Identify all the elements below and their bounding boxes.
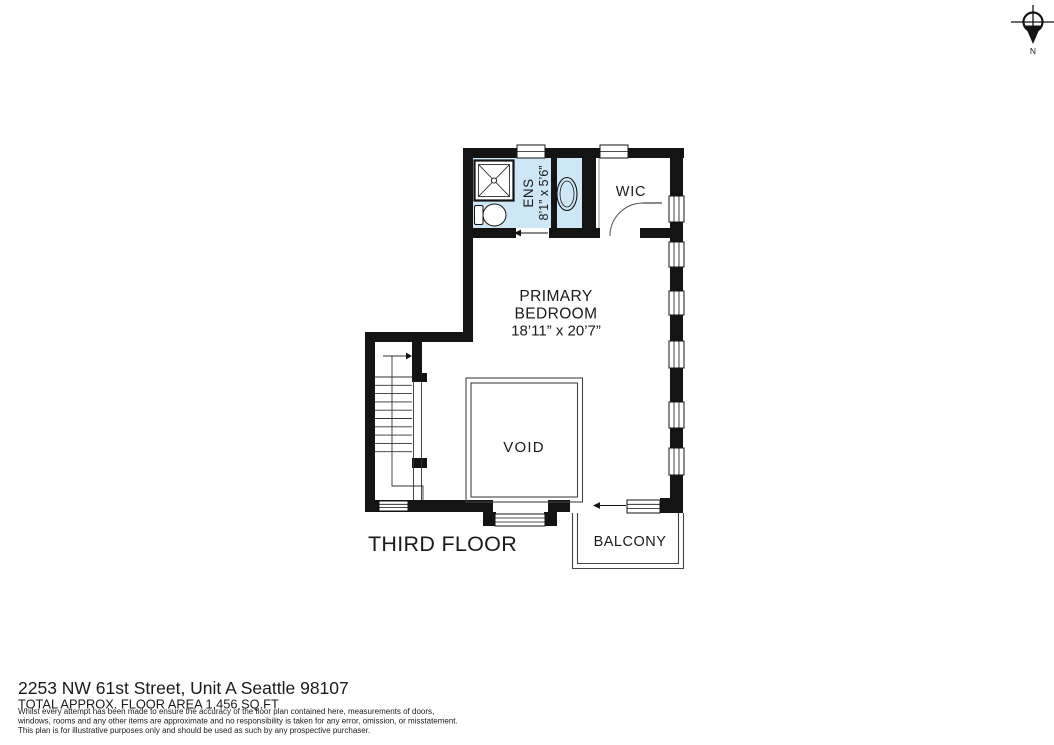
window-top-wic <box>600 145 628 158</box>
wall-ens-divider <box>551 158 557 228</box>
wic-door-swing-arc <box>610 203 643 236</box>
wall-left-upper <box>463 158 473 342</box>
window-right-5 <box>669 402 684 428</box>
footer-disclaimer-line: windows, rooms and any other items are a… <box>17 717 458 726</box>
ens-label: ENS <box>521 178 536 207</box>
wall-stair-block <box>412 458 427 468</box>
wall-wic-bottom <box>640 228 670 238</box>
stair-railing <box>414 380 422 500</box>
ens-door-arrow <box>514 230 548 237</box>
wall-stair-wing-left <box>365 342 375 512</box>
wall-ens-wic-divider <box>582 158 596 238</box>
window-right-3 <box>669 291 684 315</box>
toilet-bowl <box>483 204 506 226</box>
wall-ens-bottom <box>463 228 516 238</box>
bay-window <box>495 514 545 526</box>
void-label: VOID <box>503 439 544 456</box>
wall-stair-notch <box>412 373 427 382</box>
wic-label: WIC <box>616 184 647 200</box>
balcony-sliding-door <box>593 500 660 513</box>
shower-drain <box>491 178 496 183</box>
window-right-1 <box>669 196 684 222</box>
footer-disclaimer-line: This plan is for illustrative purposes o… <box>18 726 370 735</box>
stair-treads <box>375 377 412 452</box>
primary-bedroom-label-line2: BEDROOM <box>515 306 598 323</box>
footer-address: 2253 NW 61st Street, Unit A Seattle 9810… <box>18 678 349 698</box>
wall-top <box>463 148 684 158</box>
window-right-2 <box>669 242 684 267</box>
window-stair-bottom <box>379 501 408 511</box>
window-right-6 <box>669 448 684 475</box>
balcony-door-panel <box>627 500 660 513</box>
footer-disclaimer-line: Whilst every attempt has been made to en… <box>18 707 434 716</box>
toilet-tank <box>475 206 484 225</box>
shower <box>475 161 514 201</box>
north-compass: N <box>1011 5 1054 56</box>
wall-stair-wing-top <box>365 332 473 342</box>
toilet <box>475 204 507 226</box>
wall-bottom-right-corner <box>660 498 683 513</box>
primary-bedroom-label-line1: PRIMARY <box>519 288 592 305</box>
window-right-4 <box>669 341 684 368</box>
bedroom-dimensions: 18’11” x 20’7” <box>511 323 601 340</box>
floor-plan-canvas: N <box>0 0 1054 745</box>
north-label: N <box>1030 46 1036 56</box>
floor-title: THIRD FLOOR <box>368 532 517 556</box>
window-top-ens <box>517 145 545 158</box>
bay-window-side-right <box>544 512 557 526</box>
balcony-label: BALCONY <box>594 534 667 550</box>
compass-needle <box>1025 26 1041 45</box>
bay-window-side-left <box>483 512 496 526</box>
ens-dimensions: 8’1” x 5’6” <box>537 166 551 221</box>
footer: 2253 NW 61st Street, Unit A Seattle 9810… <box>17 678 458 735</box>
